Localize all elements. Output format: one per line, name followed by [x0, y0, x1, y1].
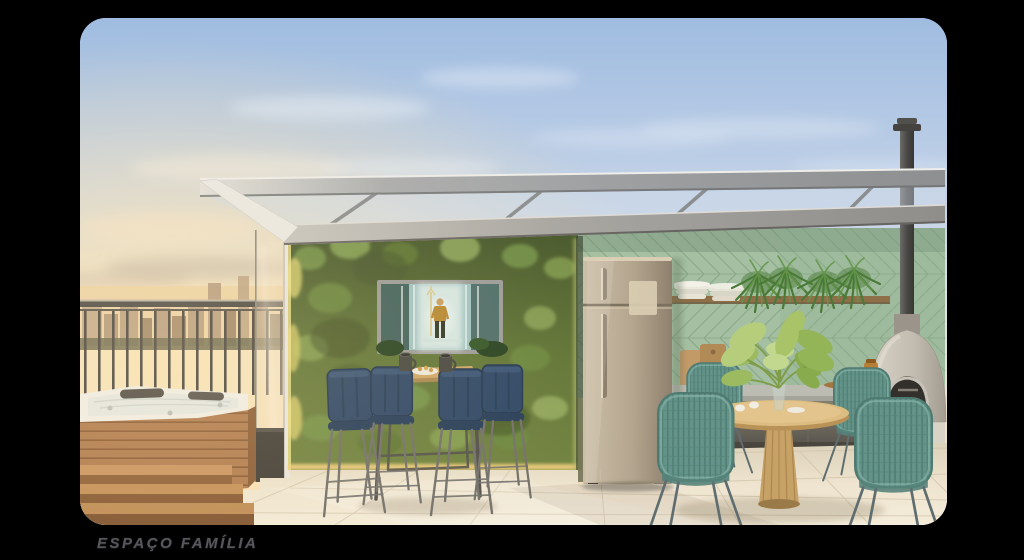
photo-caption: ESPAÇO FAMÍLIA — [97, 535, 258, 552]
light-overlay — [80, 18, 947, 525]
terrace-scene — [80, 18, 947, 525]
terrace-photo — [80, 18, 947, 525]
stage: ESPAÇO FAMÍLIA — [0, 0, 1024, 560]
